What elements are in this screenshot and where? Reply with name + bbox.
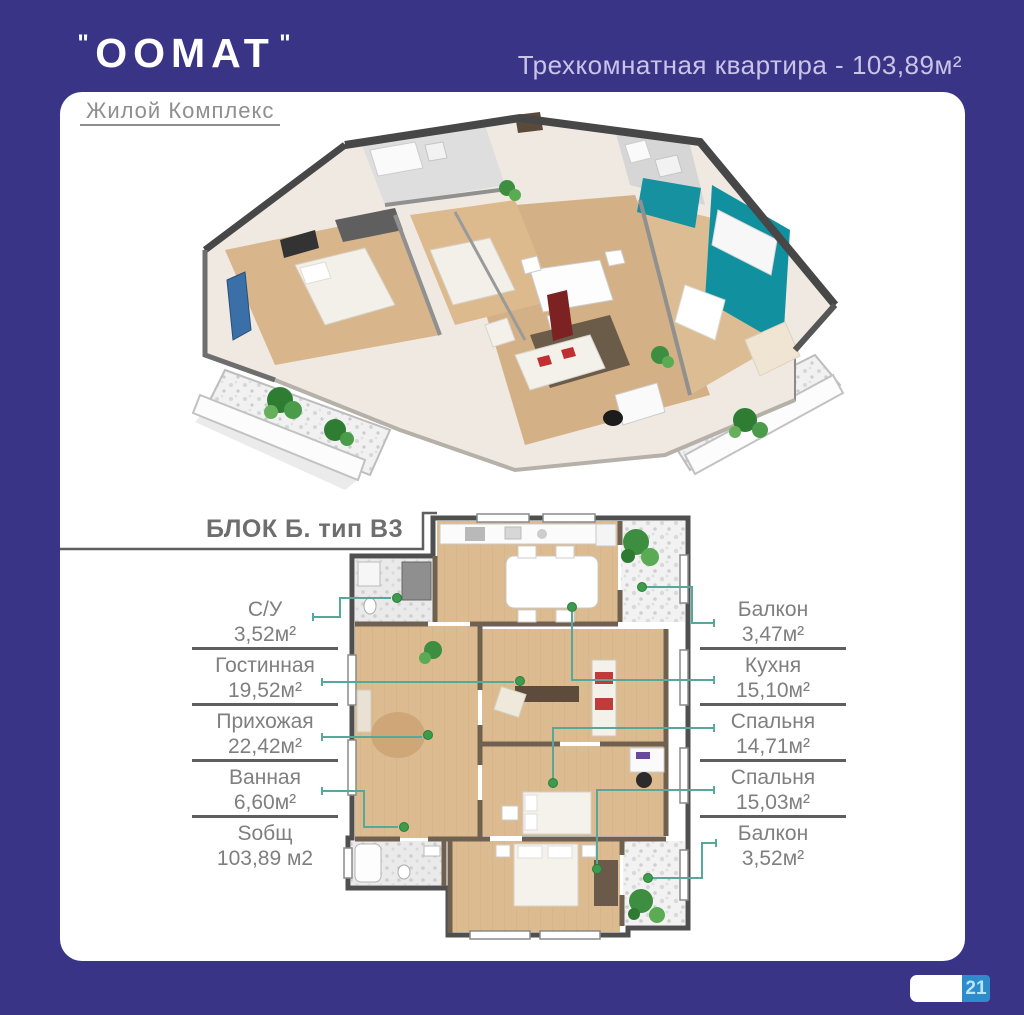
complex-subtitle: Жилой Комплекс [86,98,274,124]
room-name: Прихожая [190,709,340,734]
room-area: 15,03м² [698,790,848,815]
room-label-entry: Балкон 3,52м² [698,819,848,875]
subtitle-underline [80,124,280,126]
room-label-entry: Балкон 3,47м² [698,595,848,651]
room-name: Ванная [190,765,340,790]
label-underline [192,647,338,650]
room-name: Балкон [698,597,848,622]
label-underline [700,815,846,818]
room-name: Спальня [698,765,848,790]
page-number-badge: 21 [910,975,990,1002]
page-number: 21 [962,975,990,1002]
room-area: 3,47м² [698,622,848,647]
room-area: 15,10м² [698,678,848,703]
room-area: 3,52м² [190,622,340,647]
room-label-entry: Ванная 6,60м² [190,763,340,819]
logo-text: OOMAT [95,30,275,76]
floor-plan-3d-render [185,100,865,500]
room-name: Кухня [698,653,848,678]
brochure-page: " OOMAT " Жилой Комплекс Трехкомнатная к… [0,0,1024,1015]
label-underline [700,647,846,650]
logo-open-quote: " [77,30,90,57]
apartment-title: Трехкомнатная квартира - 103,89м² [518,50,962,81]
room-label-entry: С/У 3,52м² [190,595,340,651]
room-label-entry: Спальня 14,71м² [698,707,848,763]
room-label-entry: Гостинная 19,52м² [190,651,340,707]
room-area: 6,60м² [190,790,340,815]
room-label-entry: Прихожая 22,42м² [190,707,340,763]
room-name: Sобщ [190,821,340,846]
room-name: С/У [190,597,340,622]
room-label-entry: Sобщ 103,89 м2 [190,819,340,875]
room-label-entry: Кухня 15,10м² [698,651,848,707]
logo: " OOMAT " [55,30,315,77]
room-area: 103,89 м2 [190,846,340,871]
badge-white-part [910,975,962,1002]
block-type-label: БЛОК Б. тип В3 [160,515,403,544]
label-underline [192,759,338,762]
room-area: 3,52м² [698,846,848,871]
logo-close-quote: " [279,30,292,57]
living-floor-2d [482,629,666,742]
floor-plan-2d [340,505,696,945]
room-name: Гостинная [190,653,340,678]
label-underline [700,759,846,762]
label-underline [192,703,338,706]
room-area: 22,42м² [190,734,340,759]
room-labels-left: С/У 3,52м² Гостинная 19,52м² Прихожая 22… [190,595,340,875]
label-underline [192,815,338,818]
room-area: 14,71м² [698,734,848,759]
room-name: Спальня [698,709,848,734]
room-labels-right: Балкон 3,47м² Кухня 15,10м² Спальня 14,7… [698,595,848,875]
label-underline [700,703,846,706]
room-name: Балкон [698,821,848,846]
room-label-entry: Спальня 15,03м² [698,763,848,819]
room-area: 19,52м² [190,678,340,703]
